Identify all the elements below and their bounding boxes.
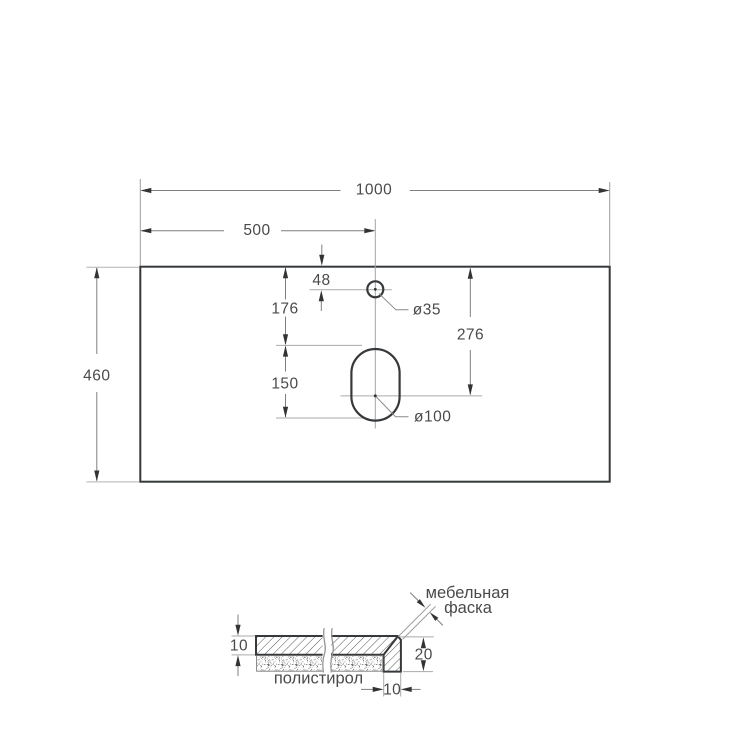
svg-text:48: 48 [312, 272, 330, 289]
svg-text:ø100: ø100 [414, 409, 451, 426]
svg-text:176: 176 [271, 301, 298, 318]
svg-text:1000: 1000 [356, 182, 392, 199]
svg-text:полистирол: полистирол [274, 670, 363, 688]
svg-text:276: 276 [457, 327, 484, 344]
svg-text:150: 150 [271, 376, 298, 393]
svg-text:10: 10 [383, 681, 401, 698]
svg-text:ø35: ø35 [413, 302, 441, 319]
svg-text:фаска: фаска [444, 599, 493, 617]
svg-text:10: 10 [230, 637, 248, 654]
svg-text:20: 20 [415, 646, 433, 663]
svg-text:500: 500 [243, 222, 270, 239]
svg-text:460: 460 [83, 368, 110, 385]
